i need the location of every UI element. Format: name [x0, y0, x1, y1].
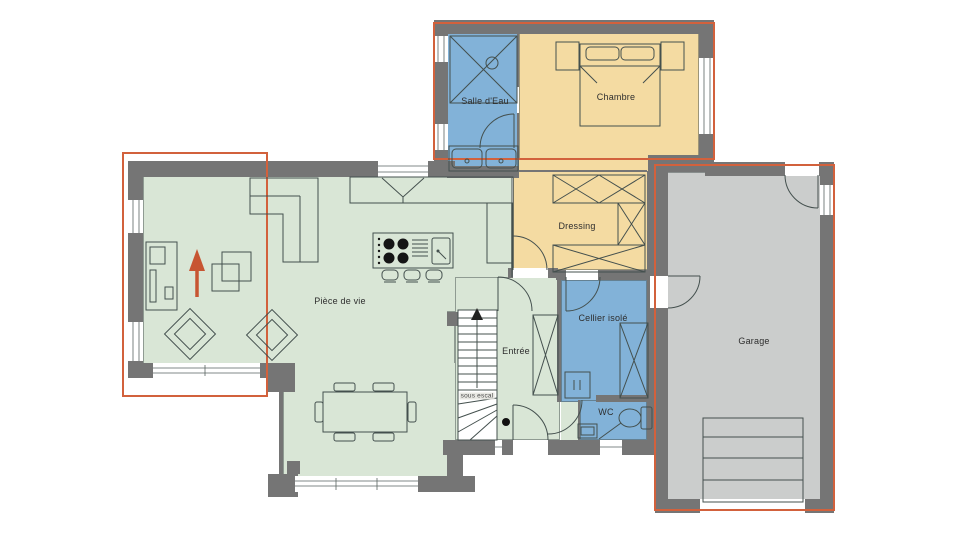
label-salle-d-eau: Salle d'Eau [461, 96, 508, 106]
room-cellier [561, 280, 647, 402]
window-kitchen-top [378, 161, 428, 177]
wall-partition-entree-cellier [557, 277, 561, 402]
label-piece-de-vie: Pièce de vie [314, 296, 365, 306]
room-wc [580, 400, 647, 440]
room-living-lower [283, 363, 457, 477]
label-cellier-isole: Cellier isolé [578, 313, 627, 323]
porch-gap-2 [600, 440, 622, 455]
wall-partition-corridor-wc [578, 400, 580, 440]
bay-window-south [295, 476, 418, 492]
dressing-door-opening [513, 268, 548, 278]
floor-plan: Salle d'Eau Chambre Dressing Pièce de vi… [0, 0, 960, 540]
wall-column [287, 461, 300, 474]
envelope-outline-extension [122, 152, 268, 397]
front-door-opening [513, 440, 548, 455]
wall-partition-chambre-dressing [519, 170, 647, 172]
wall-lower-left-thin [279, 392, 283, 476]
wall-under-vanity [447, 166, 519, 178]
cellier-door-opening [566, 270, 598, 280]
label-sous-escalier: sous escal [460, 393, 495, 400]
envelope-outline-wing [433, 22, 715, 160]
porch-gap-1 [495, 440, 502, 455]
wall-corner-post [268, 363, 295, 392]
room-corridor-wc [561, 400, 579, 440]
label-chambre: Chambre [597, 92, 635, 102]
label-entree: Entrée [502, 346, 530, 356]
wall-stairs-stub [447, 312, 459, 326]
label-garage: Garage [738, 336, 769, 346]
label-dressing: Dressing [558, 221, 595, 231]
wall-porch [443, 440, 662, 455]
wall-wc-top [596, 395, 648, 402]
room-entree [455, 277, 560, 440]
label-wc: WC [598, 407, 613, 417]
wall-post-bottom-left [268, 474, 298, 497]
